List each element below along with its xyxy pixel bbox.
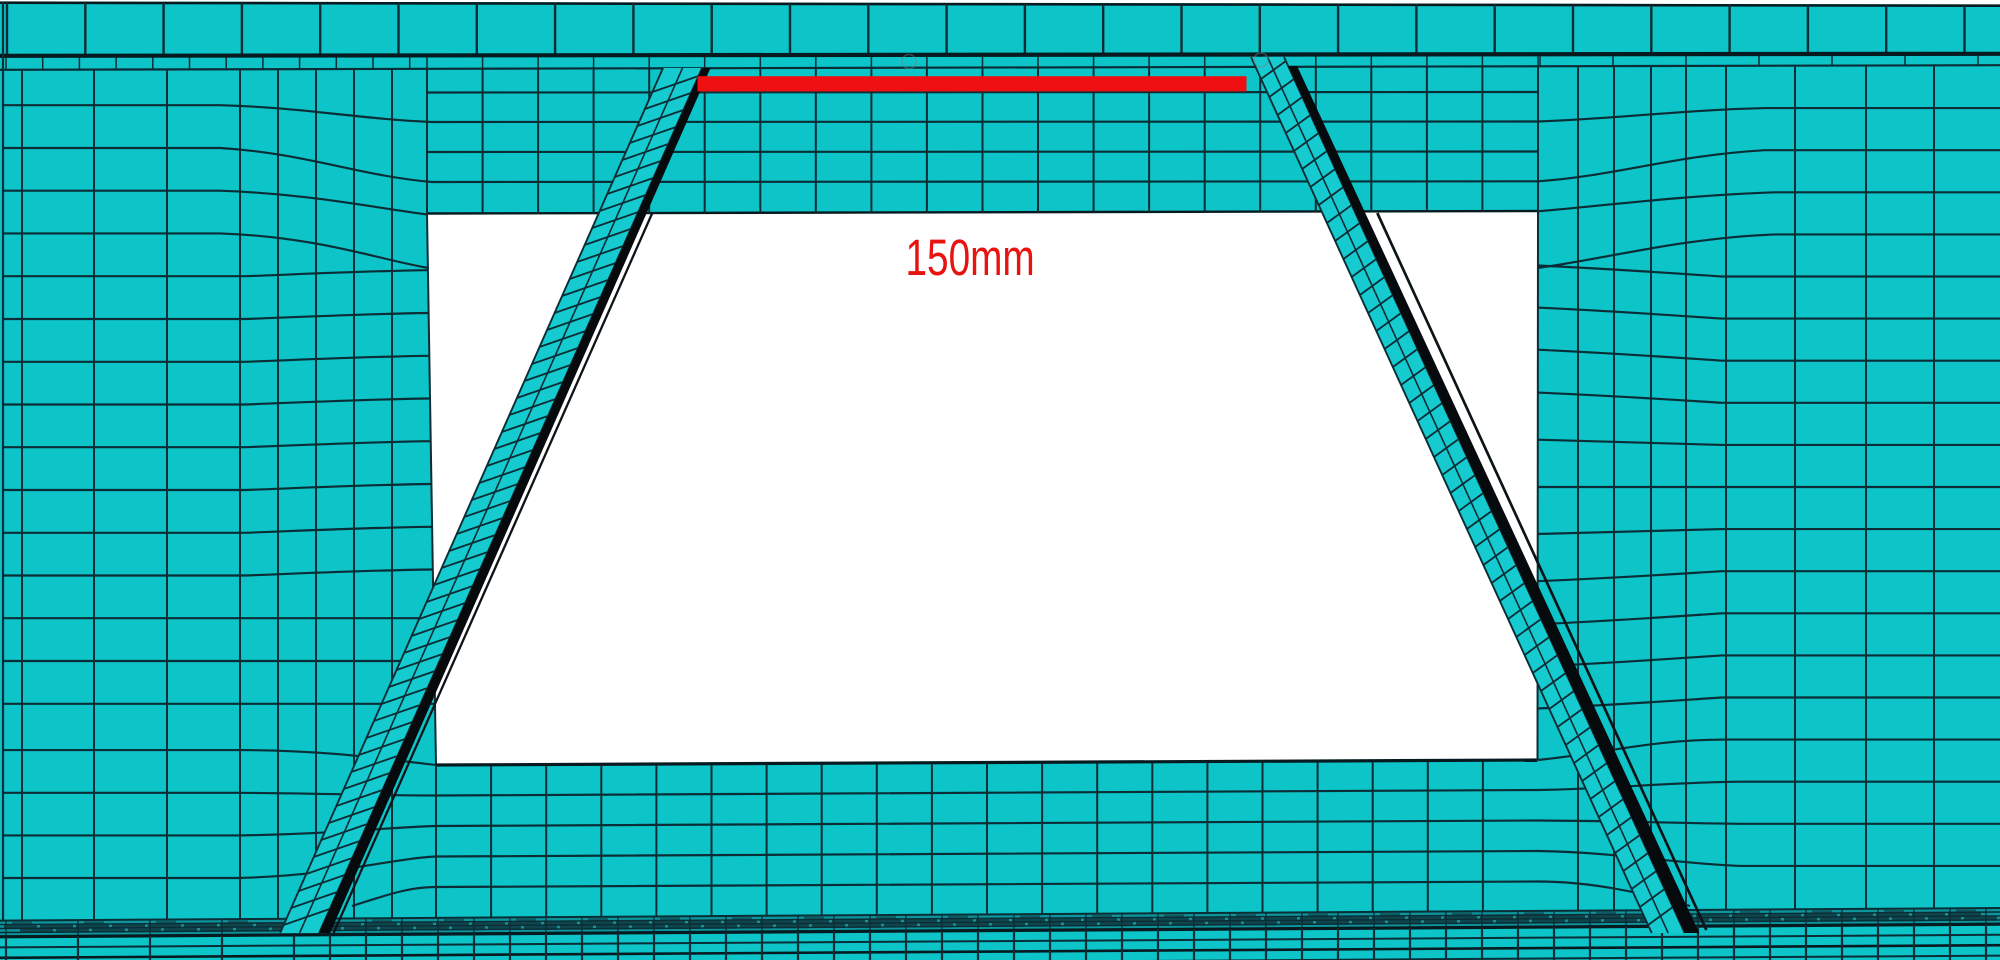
svg-text:150mm: 150mm <box>906 229 1035 286</box>
